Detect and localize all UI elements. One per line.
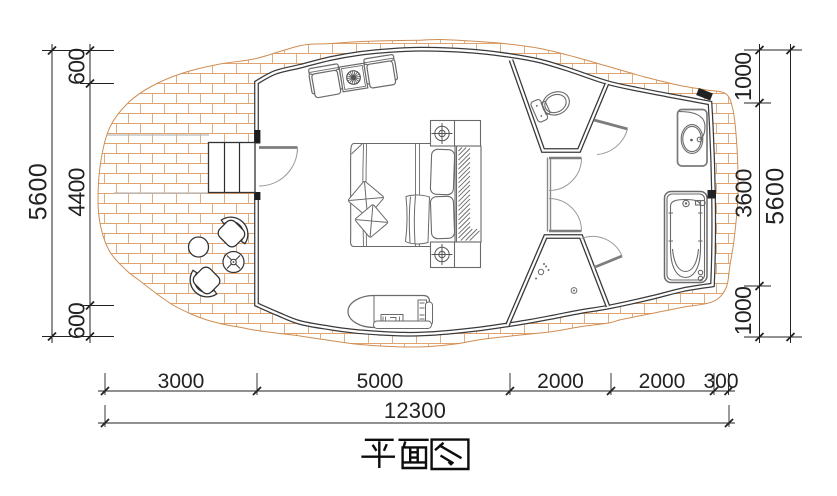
svg-text:12300: 12300 [384, 398, 446, 423]
svg-text:300: 300 [703, 370, 738, 393]
svg-text:3000: 3000 [158, 370, 205, 393]
svg-text:2000: 2000 [639, 370, 686, 393]
svg-text:3600: 3600 [731, 169, 757, 217]
svg-text:600: 600 [64, 303, 90, 339]
svg-text:5000: 5000 [357, 370, 404, 393]
svg-text:600: 600 [64, 49, 90, 85]
svg-text:5600: 5600 [761, 167, 789, 225]
svg-text:2000: 2000 [537, 370, 584, 393]
svg-text:4400: 4400 [64, 168, 90, 216]
svg-text:5600: 5600 [25, 163, 53, 221]
svg-text:1000: 1000 [730, 53, 756, 101]
svg-text:1000: 1000 [730, 287, 756, 335]
